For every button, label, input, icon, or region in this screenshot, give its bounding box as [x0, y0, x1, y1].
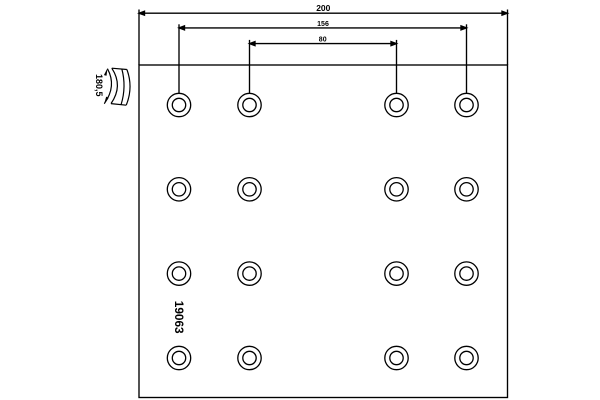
svg-text:80: 80 — [319, 37, 327, 44]
svg-text:200: 200 — [316, 3, 330, 13]
svg-text:156: 156 — [317, 21, 329, 28]
svg-text:180,5: 180,5 — [94, 74, 104, 97]
svg-text:19063: 19063 — [172, 301, 186, 334]
